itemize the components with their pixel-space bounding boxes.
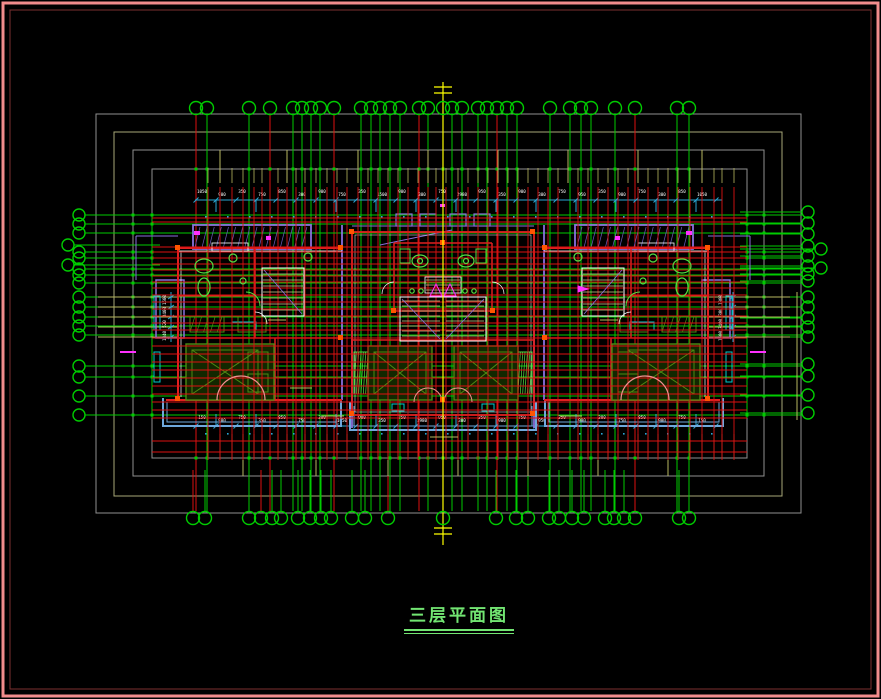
svg-text:1050: 1050: [197, 189, 208, 194]
svg-text:3400: 3400: [162, 306, 167, 317]
svg-text:950: 950: [578, 192, 586, 197]
svg-text:850: 850: [638, 415, 646, 420]
svg-text:350: 350: [358, 189, 366, 194]
svg-text:350: 350: [598, 189, 606, 194]
svg-text:750: 750: [338, 192, 346, 197]
svg-text:300: 300: [418, 192, 426, 197]
svg-text:900: 900: [618, 192, 626, 197]
axis-bubbles: [62, 102, 827, 525]
svg-text:1340: 1340: [162, 330, 167, 341]
border-rects: [96, 114, 801, 513]
svg-text:150: 150: [198, 415, 206, 420]
svg-text:900: 900: [318, 189, 326, 194]
svg-text:900: 900: [518, 189, 526, 194]
svg-text:300: 300: [598, 415, 606, 420]
cad-sheet: 1050900350750850300900750350150090030075…: [0, 0, 881, 699]
svg-text:2980: 2980: [417, 418, 428, 423]
drawing-title: 三层平面图: [404, 601, 514, 626]
svg-text:350: 350: [498, 192, 506, 197]
axis-grid-green: [74, 114, 815, 511]
svg-text:1500: 1500: [377, 192, 388, 197]
drawing-title-block: 三层平面图: [404, 601, 514, 634]
svg-text:850: 850: [278, 189, 286, 194]
svg-text:350: 350: [378, 418, 386, 423]
floor-plan-drawing: 1050900350750850300900750350150090030075…: [0, 0, 881, 699]
svg-text:850: 850: [278, 415, 286, 420]
svg-text:350: 350: [238, 189, 246, 194]
svg-text:950: 950: [478, 189, 486, 194]
svg-text:750: 750: [438, 189, 446, 194]
svg-text:750: 750: [638, 189, 646, 194]
svg-text:520: 520: [162, 320, 167, 328]
svg-text:300: 300: [538, 192, 546, 197]
svg-text:750: 750: [238, 415, 246, 420]
svg-text:750: 750: [678, 415, 686, 420]
svg-text:900: 900: [218, 192, 226, 197]
svg-text:300: 300: [458, 418, 466, 423]
title-underline-2: [404, 633, 514, 634]
title-underline: [404, 629, 514, 631]
svg-text:1500: 1500: [162, 294, 167, 305]
svg-text:2980: 2980: [457, 192, 468, 197]
svg-text:900: 900: [398, 189, 406, 194]
svg-text:850: 850: [678, 189, 686, 194]
svg-text:300: 300: [658, 192, 666, 197]
svg-text:750: 750: [558, 189, 566, 194]
svg-text:1050: 1050: [337, 418, 348, 423]
svg-text:900: 900: [498, 418, 506, 423]
